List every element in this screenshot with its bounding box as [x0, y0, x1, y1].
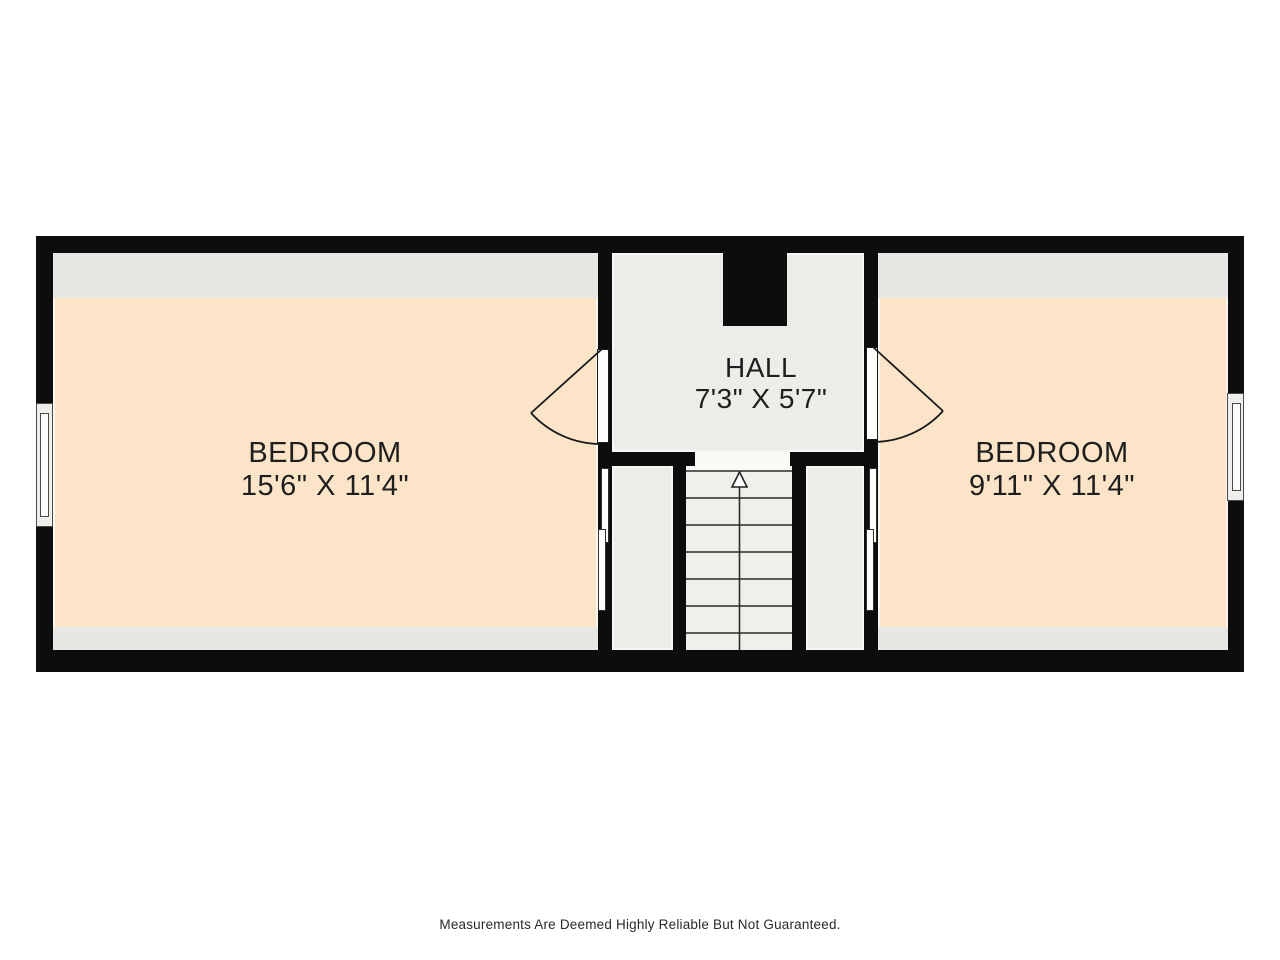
floor-plan-page: BEDROOM 15'6" X 11'4" HALL 7'3" X 5'7" B…: [0, 0, 1280, 960]
hall-label: HALL 7'3" X 5'7": [695, 352, 828, 414]
room-name: HALL: [695, 352, 828, 383]
stairs-up-arrow-icon: [732, 472, 747, 487]
floor-plan: BEDROOM 15'6" X 11'4" HALL 7'3" X 5'7" B…: [36, 236, 1244, 672]
room-dimensions: 7'3" X 5'7": [695, 383, 828, 414]
bedroom-left-label: BEDROOM 15'6" X 11'4": [241, 437, 409, 503]
bedroom-right-label: BEDROOM 9'11" X 11'4": [969, 437, 1135, 503]
room-name: BEDROOM: [241, 437, 409, 470]
room-dimensions: 15'6" X 11'4": [241, 470, 409, 503]
door-swing-right-icon: [873, 347, 943, 442]
room-name: BEDROOM: [969, 437, 1135, 470]
door-swing-left-icon: [531, 349, 602, 444]
disclaimer-text: Measurements Are Deemed Highly Reliable …: [0, 917, 1280, 932]
room-dimensions: 9'11" X 11'4": [969, 470, 1135, 503]
